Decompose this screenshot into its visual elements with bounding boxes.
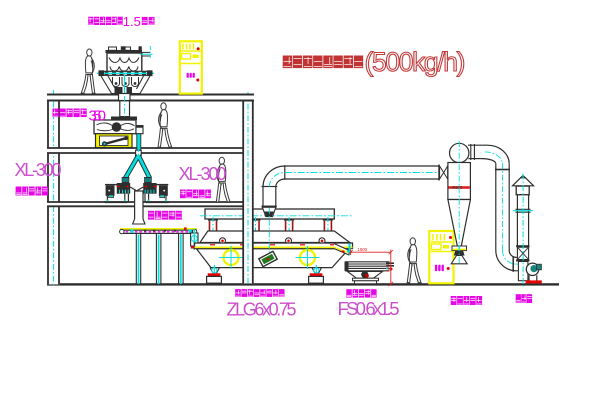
svg-text:FS0.6x1.5: FS0.6x1.5 xyxy=(338,298,400,319)
svg-text:1500: 1500 xyxy=(358,247,368,252)
svg-text:350: 350 xyxy=(89,108,107,125)
svg-text:XL-300: XL-300 xyxy=(15,160,62,180)
svg-text:1.5: 1.5 xyxy=(123,14,141,29)
svg-text:(500kg/h): (500kg/h) xyxy=(365,47,466,77)
svg-text:XL-300: XL-300 xyxy=(179,164,227,184)
svg-text:Φ600: Φ600 xyxy=(452,185,463,190)
svg-text:ZLG6x0.75: ZLG6x0.75 xyxy=(227,300,297,320)
svg-text:548: 548 xyxy=(386,264,391,272)
